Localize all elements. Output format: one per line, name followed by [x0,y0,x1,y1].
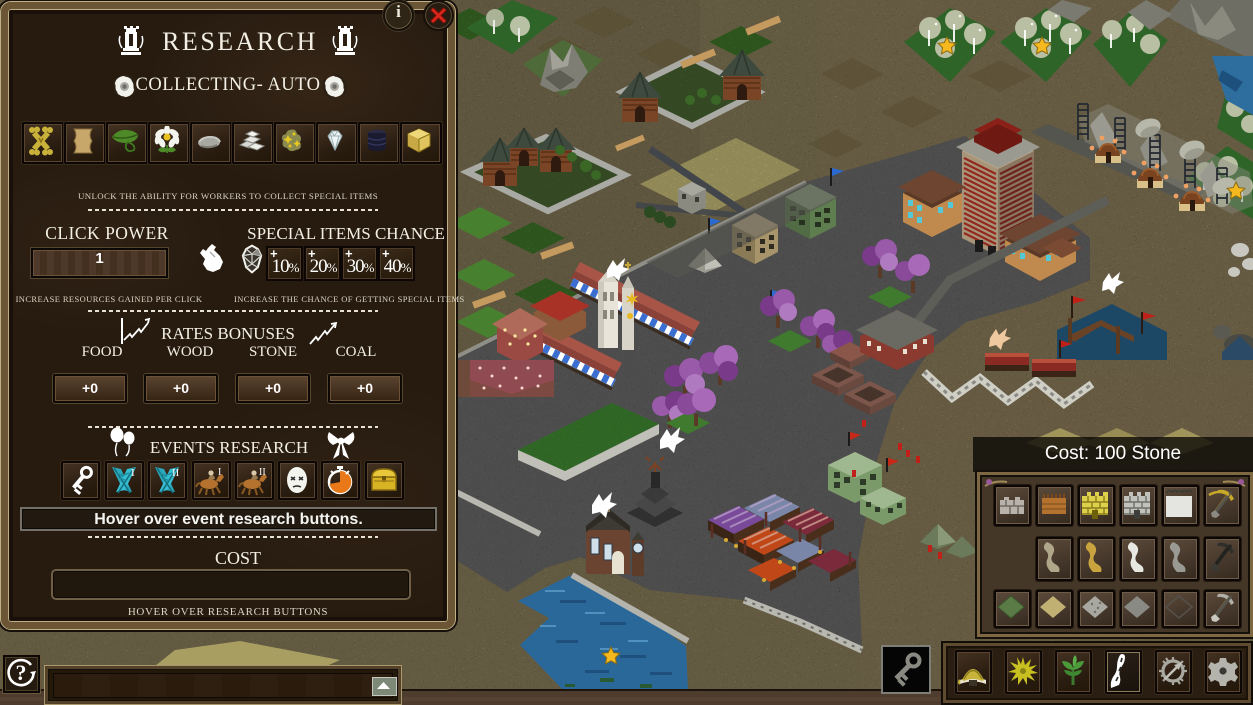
svg-text:?: ? [16,660,27,685]
svg-text:II: II [259,467,266,478]
svg-text:I: I [131,467,135,479]
svg-text:II: II [172,467,180,479]
svg-text:I: I [218,467,221,478]
